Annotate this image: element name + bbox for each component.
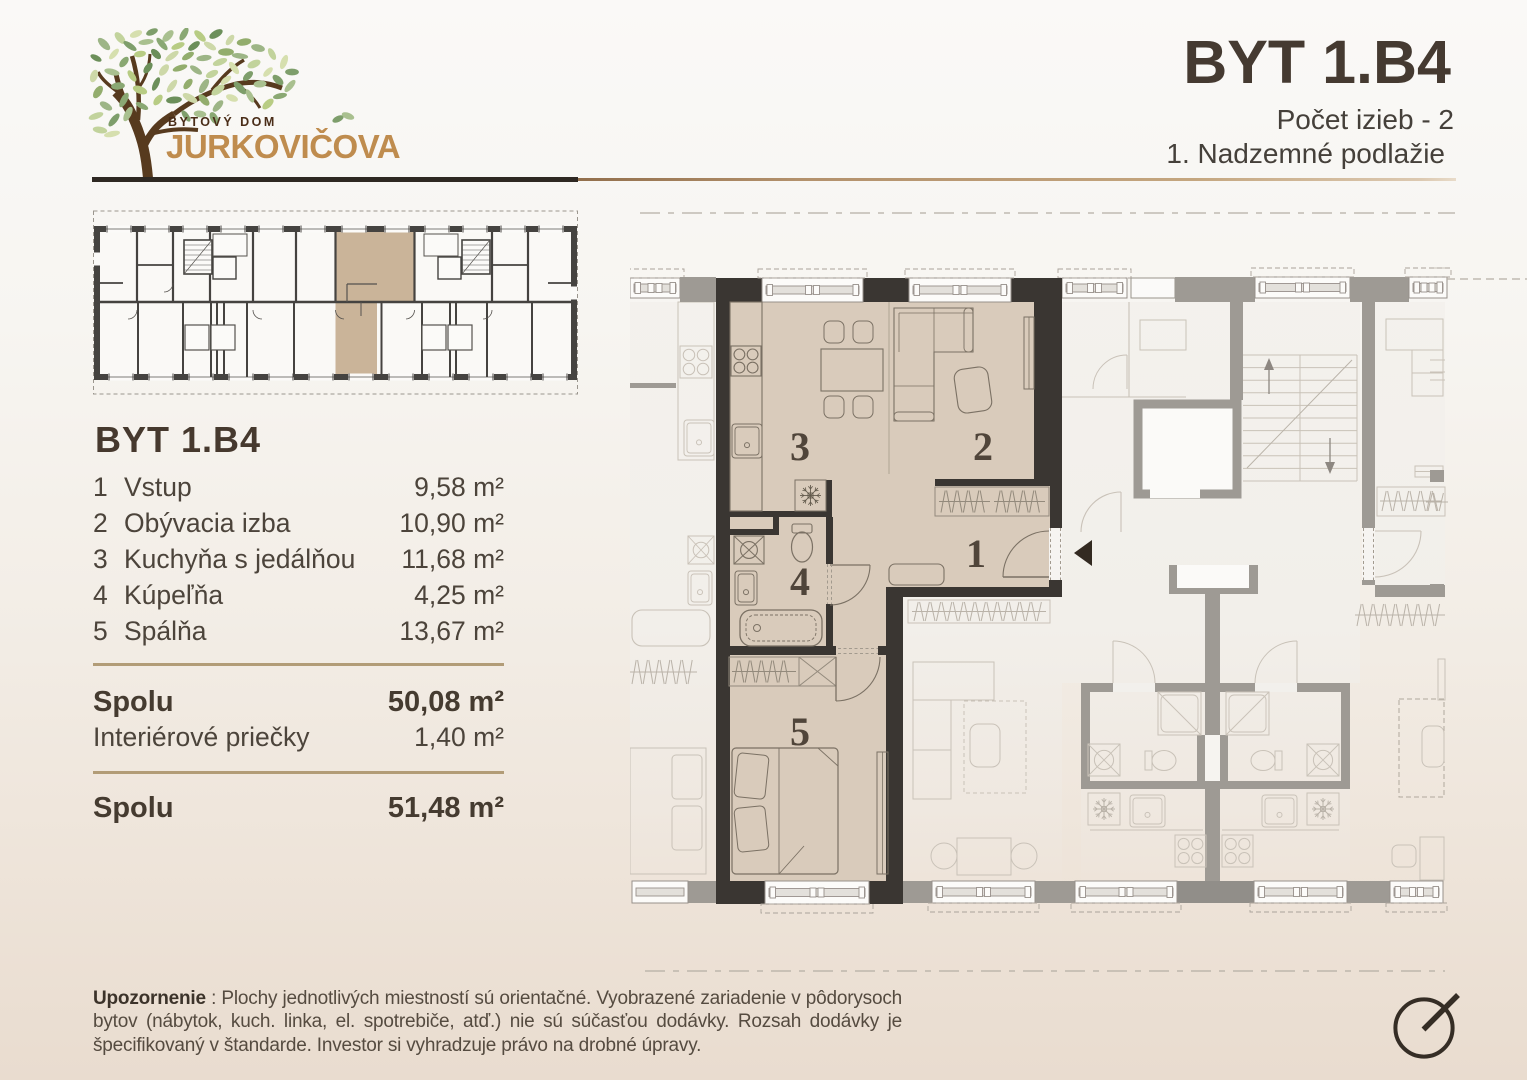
svg-text:1: 1 <box>966 531 986 576</box>
svg-text:5: 5 <box>790 709 810 754</box>
svg-text:3: 3 <box>790 424 810 469</box>
svg-text:BYTOVÝ DOM: BYTOVÝ DOM <box>168 114 277 129</box>
svg-text:2: 2 <box>973 424 993 469</box>
svg-text:JURKOVIČOVA: JURKOVIČOVA <box>166 127 400 165</box>
svg-text:4: 4 <box>790 559 810 604</box>
